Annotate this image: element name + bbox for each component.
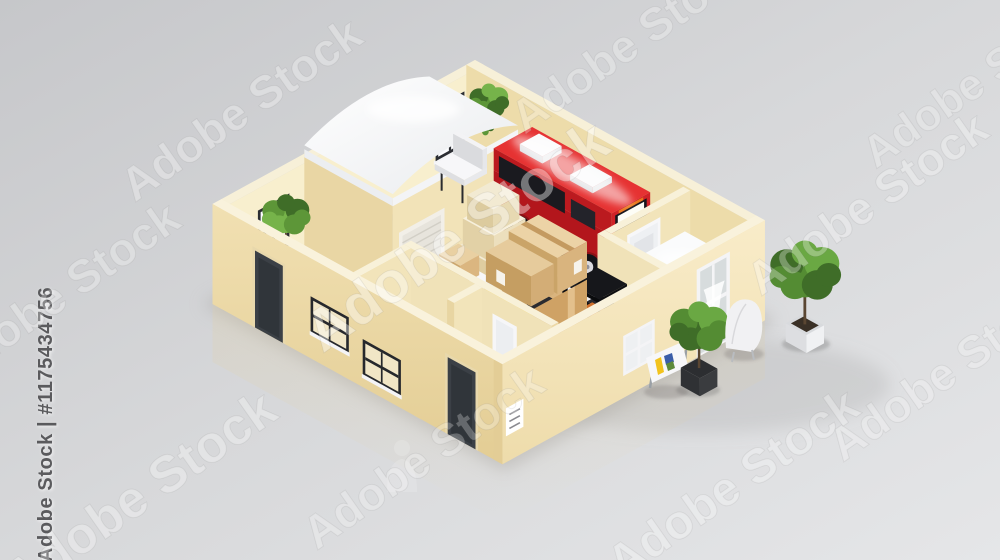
stock-image-canvas: Adobe Stock | #1175434756 Adobe Stock | … (0, 0, 1000, 560)
isometric-scene: Adobe Stock | #1175434756 Adobe Stock | … (0, 0, 1000, 560)
